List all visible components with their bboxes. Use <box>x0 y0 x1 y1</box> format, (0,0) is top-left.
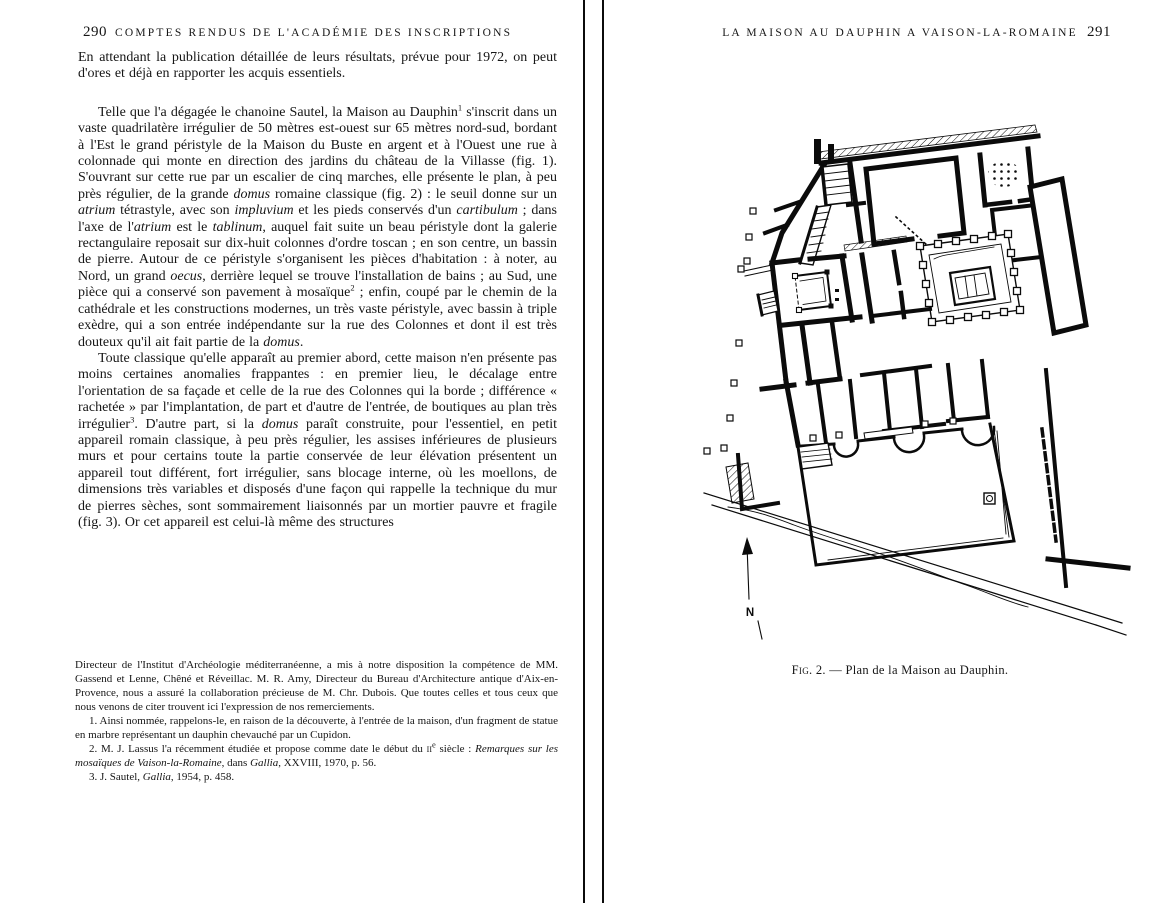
page-number-right: 291 <box>1087 24 1111 41</box>
book-spread: 290 COMPTES RENDUS DE L'ACADÉMIE DES INS… <box>0 0 1166 903</box>
running-header-left: COMPTES RENDUS DE L'ACADÉMIE DES INSCRIP… <box>115 27 475 39</box>
caption-text: Plan de la Maison au Dauphin. <box>846 663 1009 677</box>
footnote-2: 2. M. J. Lassus l'a récemment étudiée et… <box>75 742 558 770</box>
figure-caption: Fig. 2. — Plan de la Maison au Dauphin. <box>640 663 1160 678</box>
plan-atrium <box>738 256 930 381</box>
caption-separator: — <box>829 663 842 677</box>
floor-plan-figure: N <box>698 113 1138 653</box>
plan-triple-exedra-basin <box>798 418 1056 565</box>
paragraph: En attendant la publication détaillée de… <box>78 50 557 83</box>
footnote-1: 1. Ainsi nommée, rappelons-le, en raison… <box>75 714 558 742</box>
footnotes: Directeur de l'Institut d'Archéologie mé… <box>75 658 558 784</box>
running-header-right: LA MAISON AU DAUPHIN A VAISON-LA-ROMAINE <box>700 27 1100 39</box>
plan-peristyle <box>917 231 1024 326</box>
paragraph: Telle que l'a dégagée le chanoine Sautel… <box>78 105 557 351</box>
body-text: En attendant la publication détaillée de… <box>78 50 557 531</box>
north-arrow-icon: N <box>742 537 762 639</box>
footnote-3: 3. J. Sautel, Gallia, 1954, p. 458. <box>75 770 558 784</box>
plan-staircase <box>800 164 852 265</box>
gutter-line-left <box>583 0 585 903</box>
plan-colonnade-dots <box>721 208 756 451</box>
bath-dotted-area <box>988 161 1020 187</box>
plan-walls: N <box>704 125 1128 639</box>
north-label: N <box>746 607 754 619</box>
gutter-line-right <box>602 0 604 903</box>
page-number-left: 290 <box>83 24 107 41</box>
footnote-continuation: Directeur de l'Institut d'Archéologie mé… <box>75 658 558 714</box>
caption-label: Fig. 2. <box>792 663 826 677</box>
paragraph: Toute classique qu'elle apparaît au prem… <box>78 351 557 531</box>
